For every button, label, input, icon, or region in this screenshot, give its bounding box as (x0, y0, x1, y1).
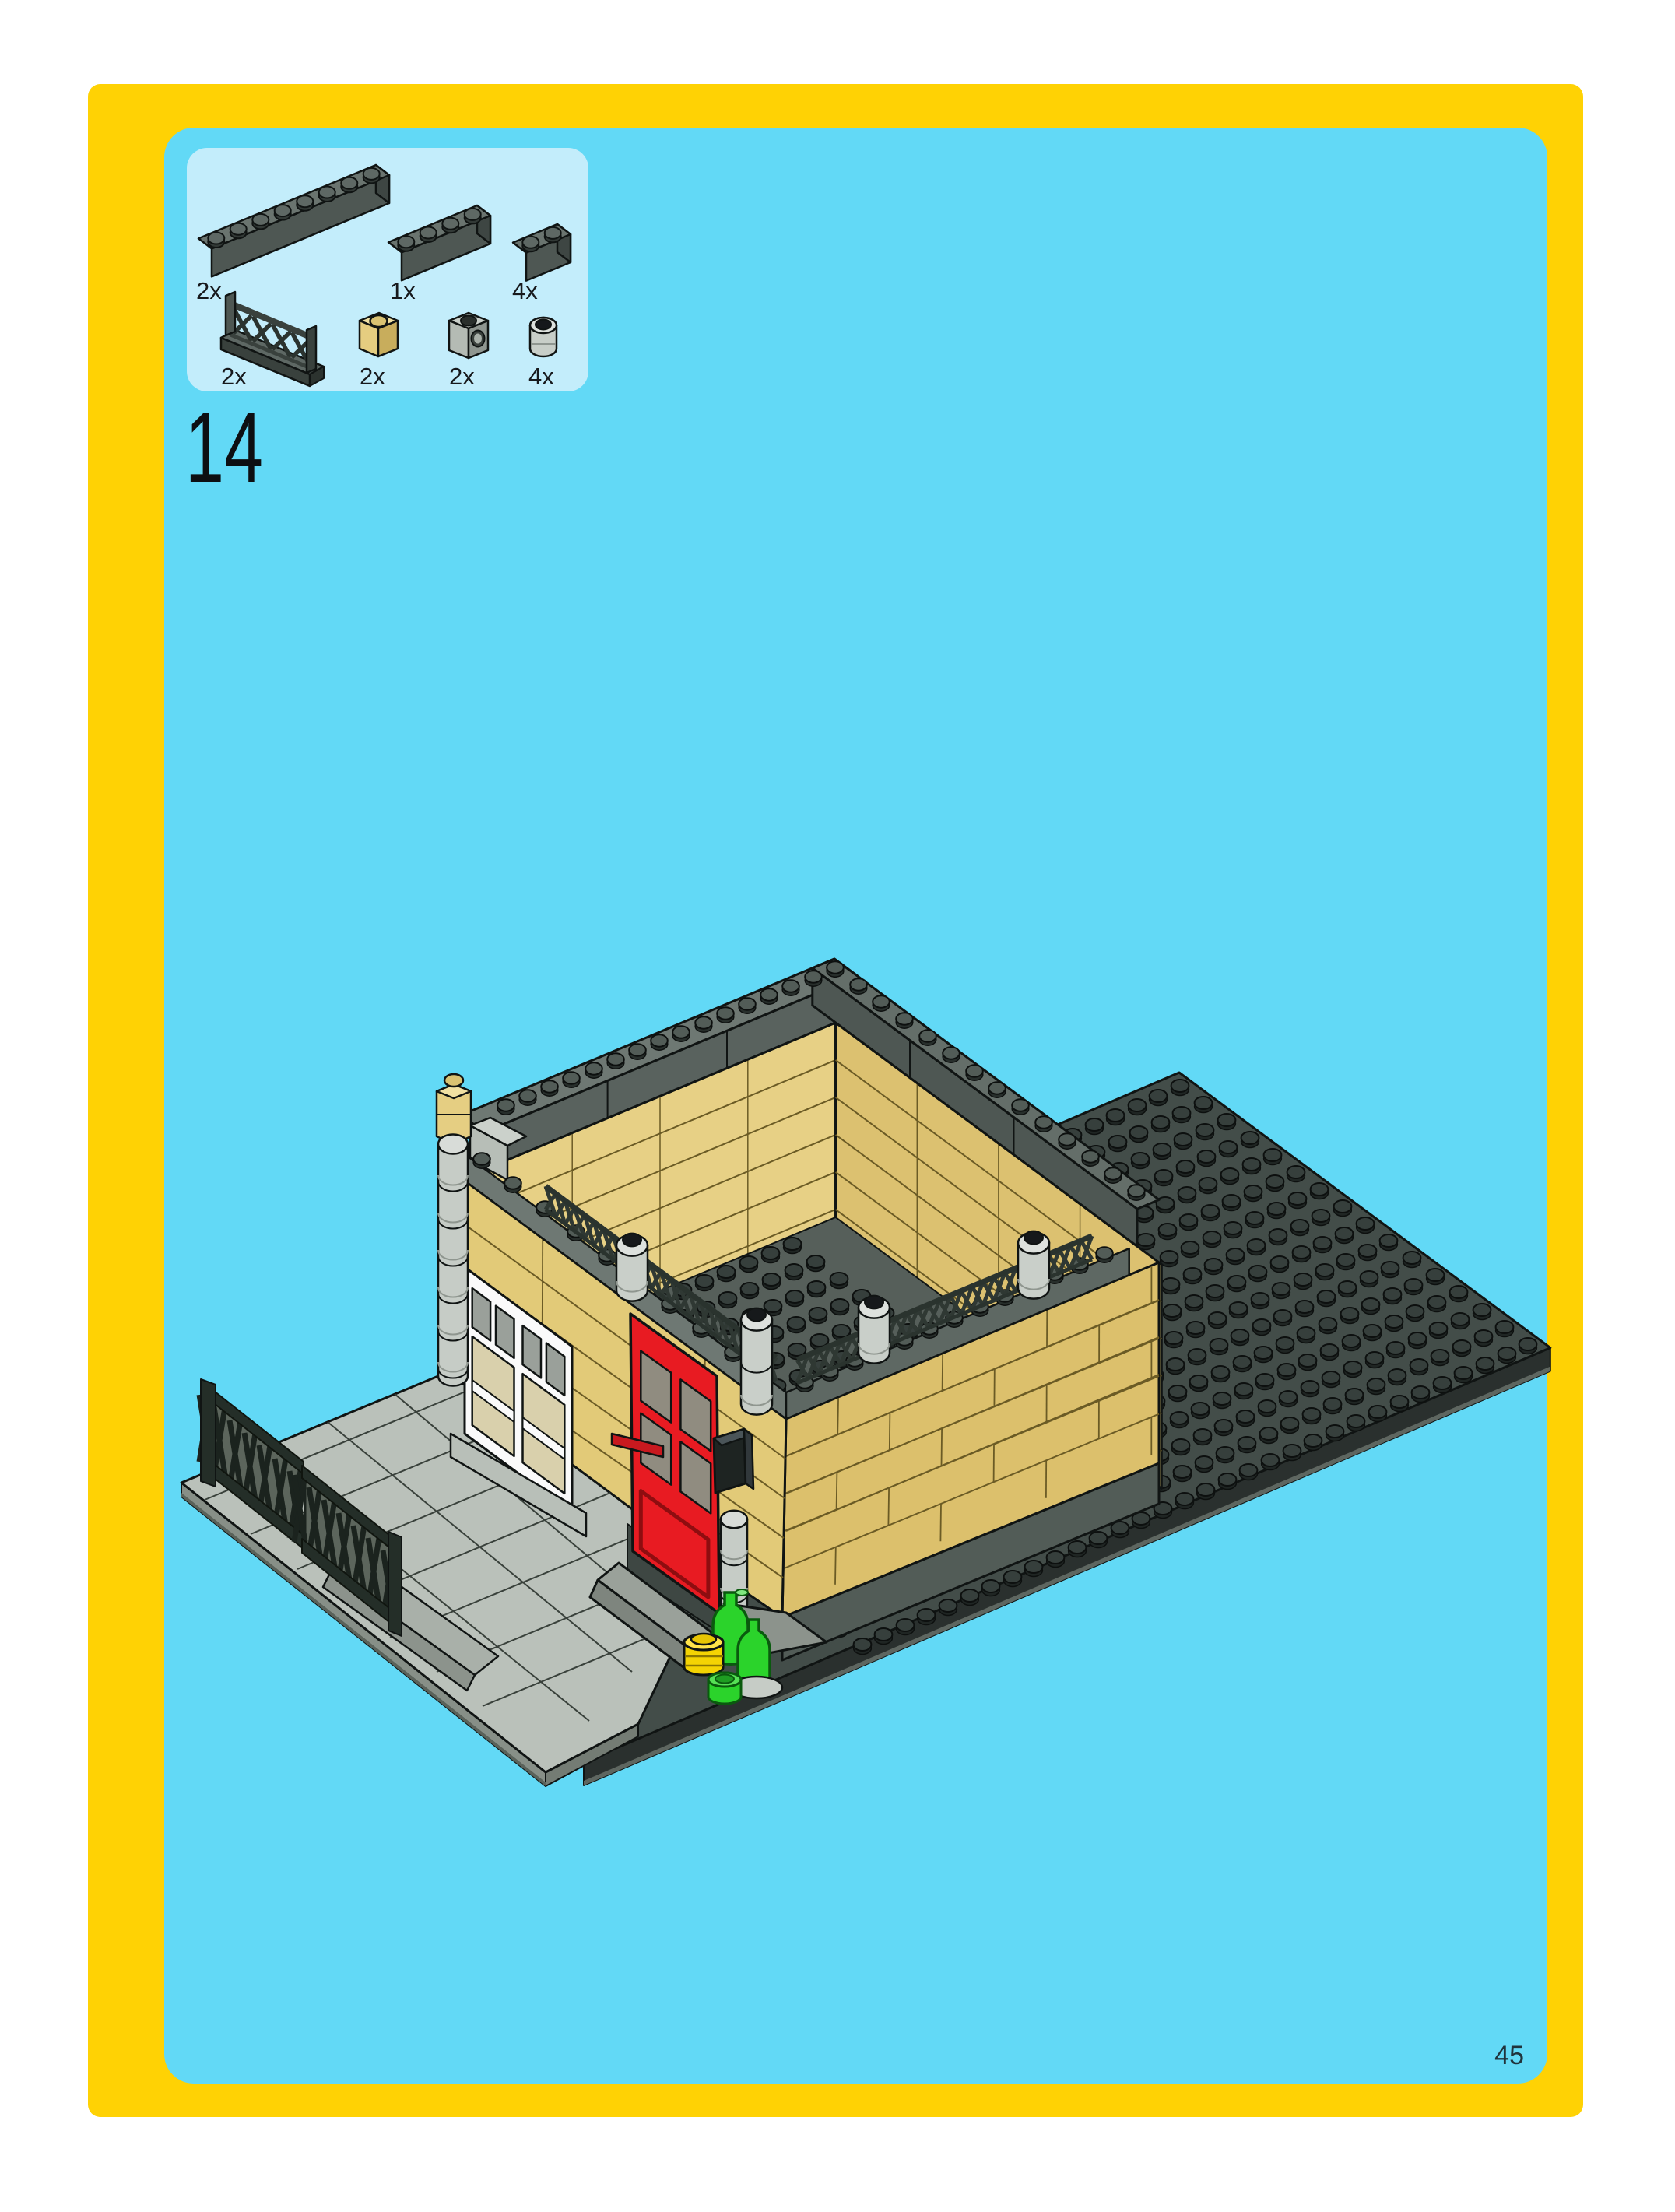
svg-text:4x: 4x (528, 363, 554, 390)
svg-text:1x: 1x (390, 277, 416, 304)
svg-text:14: 14 (185, 392, 263, 504)
svg-text:2x: 2x (360, 363, 385, 390)
svg-text:2x: 2x (196, 277, 222, 304)
svg-text:4x: 4x (512, 277, 538, 304)
svg-text:2x: 2x (221, 363, 247, 390)
svg-text:2x: 2x (449, 363, 475, 390)
svg-text:45: 45 (1494, 2041, 1524, 2070)
